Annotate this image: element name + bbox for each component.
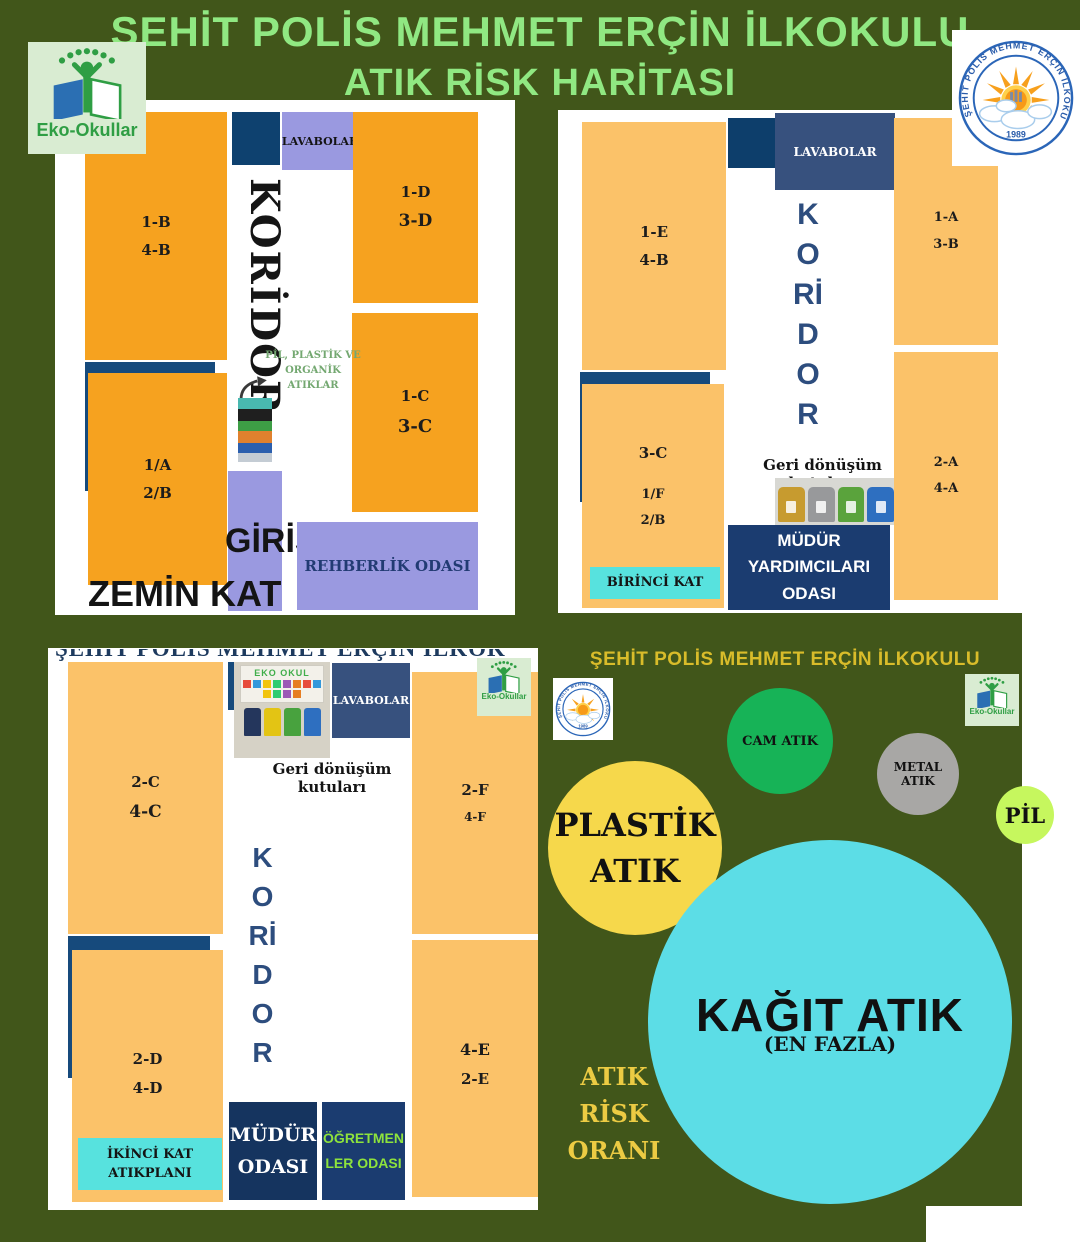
bubble-label: CAM ATIK xyxy=(742,734,818,749)
koridor-letter: K xyxy=(797,195,819,235)
ogretmenler-line: LER ODASI xyxy=(325,1151,401,1176)
school-logo: ŞEHİT POLİS MEHMET ERÇİN İLKOKULU xyxy=(952,30,1080,166)
bubble-label: PLASTİK xyxy=(554,802,715,848)
risk-axis-line: ORANI xyxy=(558,1132,670,1169)
stair-block xyxy=(728,118,775,168)
floor-label-text: ATIKPLANI xyxy=(108,1164,191,1184)
room-label: 2-C xyxy=(131,774,160,791)
koridor-letter: O xyxy=(252,877,274,916)
mudur-odasi-line: ODASI xyxy=(238,1151,308,1183)
eko-okul-poster: EKO OKUL xyxy=(240,665,325,703)
room-label: 4-B xyxy=(639,252,668,269)
room-label: 1-B xyxy=(141,214,170,231)
floor-label-text: BİRİNCİ KAT xyxy=(607,573,704,593)
room-label: 2-A xyxy=(934,456,959,470)
ogretmenler-odasi-box: ÖĞRETMEN LER ODASI xyxy=(322,1102,405,1200)
room-label: 1-C xyxy=(401,388,430,405)
koridor-letter: R xyxy=(252,1033,272,1072)
bubble-label: ATIK xyxy=(901,774,935,788)
koridor-letter: Rİ xyxy=(793,275,823,315)
koridor-letter: O xyxy=(796,355,819,395)
room-2c-4c: 2-C 4-C xyxy=(68,662,223,934)
waste-note-line: PİL, PLASTİK VE xyxy=(248,348,378,363)
poster-title: ŞEHİT POLİS MEHMET ERÇİN İLKOKULU xyxy=(0,8,1080,56)
lavabolar-label: LAVABOLAR xyxy=(282,135,358,148)
room-label: 3-C xyxy=(398,417,432,437)
room-1d-3d: 1-D 3-D xyxy=(353,112,478,303)
ogretmenler-line: ÖĞRETMEN xyxy=(323,1126,404,1151)
floor-label-zemin: ZEMİN KAT xyxy=(88,573,281,615)
eko-okullar-emblem-icon xyxy=(969,676,1015,708)
mudur-odasi-line: MÜDÜR xyxy=(230,1119,316,1151)
room-1c-3c: 1-C 3-C xyxy=(352,313,478,512)
room-label: 4-D xyxy=(133,1080,163,1097)
bubble-label: METAL xyxy=(894,760,942,774)
koridor-vertical: K O Rİ D O R xyxy=(240,838,285,1072)
room-label: 2/B xyxy=(641,514,666,528)
recycling-bins-image xyxy=(244,706,321,736)
poster-art xyxy=(241,678,324,700)
koridor-letter: Rİ xyxy=(249,916,277,955)
mudur-yardimcilari-line: MÜDÜR xyxy=(777,528,840,554)
lavabolar-label: LAVABOLAR xyxy=(793,145,876,159)
risk-axis-line: RİSK xyxy=(558,1095,670,1132)
school-emblem-icon: ŞEHİT POLİS MEHMET ERÇİN İLKOKULU xyxy=(957,39,1075,157)
risk-panel-title: ŞEHİT POLİS MEHMET ERÇİN İLKOKULU xyxy=(560,649,1010,671)
school-logo: ŞEHİT POLİS MEHMET ERÇİN İLKOKULU 1989 xyxy=(553,678,613,740)
bubble-label: ATIK xyxy=(590,848,680,894)
eko-okullar-emblem-icon xyxy=(480,660,528,693)
geri-donusum-caption: Geri dönüşüm kutuları xyxy=(243,760,421,796)
koridor-letter: D xyxy=(252,955,272,994)
floor-label-ikinci: İKİNCİ KAT ATIKPLANI xyxy=(78,1138,222,1190)
floor-label-text: İKİNCİ KAT xyxy=(107,1145,193,1165)
eko-okullar-emblem-icon xyxy=(35,46,139,119)
white-bottom-notch xyxy=(926,1206,1080,1242)
koridor-letter: D xyxy=(797,315,819,355)
eko-okul-poster-title: EKO OKUL xyxy=(241,668,324,678)
lavabolar-box: LAVABOLAR xyxy=(775,113,895,190)
lavabolar-box: LAVABOLAR xyxy=(332,663,410,738)
room-label: 1-D xyxy=(401,184,431,201)
room-label: 1-E xyxy=(640,224,668,241)
room-label: 1-A xyxy=(934,211,959,225)
room-label: 1/F xyxy=(641,488,664,502)
poster: ŞEHİT POLİS MEHMET ERÇİN İLKOKULU ATIK R… xyxy=(0,0,1080,1242)
rehberlik-label: REHBERLİK ODASI xyxy=(304,557,470,575)
risk-axis-label: ATIK RİSK ORANI xyxy=(558,1058,670,1170)
eko-okullar-logo: Eko-Okullar xyxy=(965,674,1019,726)
clipped-title: ŞEHİT POLİS MEHMET ERÇİN İLKOKULU xyxy=(55,636,505,662)
room-label: 4-C xyxy=(129,803,161,822)
koridor-letter: R xyxy=(797,395,819,435)
mudur-yardimcilari-box: MÜDÜR YARDIMCILARI ODASI xyxy=(728,525,890,610)
koridor-letter: K xyxy=(252,838,272,877)
room-1e-4b: 1-E 4-B xyxy=(582,122,726,370)
wall-bar xyxy=(68,936,210,950)
eko-okullar-logo: Eko-Okullar xyxy=(28,42,146,154)
koridor-letter: O xyxy=(252,994,274,1033)
lavabolar-box: LAVABOLAR xyxy=(282,112,358,170)
room-4e-2e: 4-E 2-E xyxy=(412,940,538,1197)
bubble-pil: PİL xyxy=(996,786,1054,844)
bubble-label: PİL xyxy=(1005,803,1045,828)
mudur-yardimcilari-line: YARDIMCILARI xyxy=(748,554,870,580)
bubble-cam-atik: CAM ATIK xyxy=(727,688,833,794)
risk-axis-line: ATIK xyxy=(558,1058,670,1095)
white-right-column xyxy=(1022,613,1080,1242)
recycling-corner-photo: EKO OKUL xyxy=(234,662,330,758)
eko-okullar-wordmark: Eko-Okullar xyxy=(482,693,527,701)
rehberlik-box: REHBERLİK ODASI xyxy=(297,522,478,610)
school-emblem-icon: ŞEHİT POLİS MEHMET ERÇİN İLKOKULU 1989 xyxy=(555,681,611,737)
room-label: 2-D xyxy=(133,1051,163,1068)
room-label: 3-C xyxy=(639,445,668,462)
recycling-bins-image xyxy=(238,398,272,462)
koridor-vertical: K O Rİ D O R xyxy=(783,195,833,435)
room-label: 2/B xyxy=(143,485,172,502)
room-label: 2-F xyxy=(461,782,488,799)
wall-bar xyxy=(580,372,710,384)
eko-okullar-wordmark: Eko-Okullar xyxy=(36,121,137,139)
mudur-yardimcilari-line: ODASI xyxy=(782,581,836,607)
room-label: 4-E xyxy=(460,1041,490,1059)
eko-okullar-wordmark: Eko-Okullar xyxy=(970,708,1015,716)
poster-subtitle: ATIK RİSK HARİTASI xyxy=(0,62,1080,105)
recycling-bins-image xyxy=(775,478,897,525)
room-1a-2b: 1/A 2/B xyxy=(88,373,227,585)
school-year: 1989 xyxy=(1006,129,1026,139)
room-2a-4a: 2-A 4-A xyxy=(894,352,998,600)
bubble-metal-atik: METAL ATIK xyxy=(877,733,959,815)
bubble-kagit-atik: KAĞIT ATIK (EN FAZLA) xyxy=(648,840,1012,1204)
room-label: 3-D xyxy=(399,212,433,231)
eko-okullar-logo: Eko-Okullar xyxy=(477,658,531,716)
floor-label-birinci: BİRİNCİ KAT xyxy=(590,567,720,599)
koridor-letter: O xyxy=(796,235,819,275)
room-label: 3-B xyxy=(933,238,958,252)
school-year: 1989 xyxy=(578,724,588,729)
lavabolar-label: LAVABOLAR xyxy=(333,694,409,707)
room-label: 4-A xyxy=(934,482,959,496)
room-label: 4-F xyxy=(464,811,486,824)
stair-block xyxy=(232,112,280,165)
room-label: 2-E xyxy=(461,1071,489,1088)
bubble-sublabel: (EN FAZLA) xyxy=(764,1032,896,1056)
wall-bar xyxy=(85,362,215,373)
room-label: 1/A xyxy=(144,457,172,474)
mudur-odasi-box: MÜDÜR ODASI xyxy=(229,1102,317,1200)
room-label: 4-B xyxy=(141,242,170,259)
